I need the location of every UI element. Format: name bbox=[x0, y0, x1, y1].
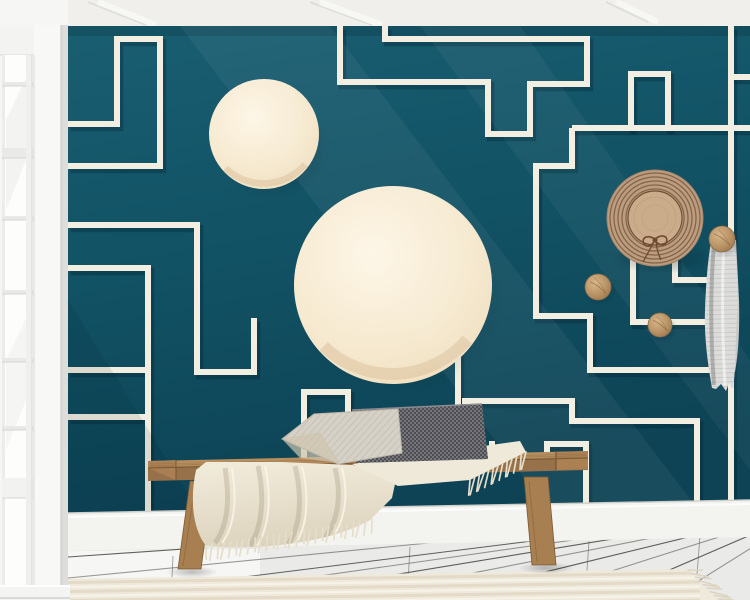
window bbox=[0, 0, 70, 600]
room-scene bbox=[0, 0, 750, 600]
ceiling bbox=[0, 0, 750, 28]
room-photo bbox=[0, 0, 750, 600]
